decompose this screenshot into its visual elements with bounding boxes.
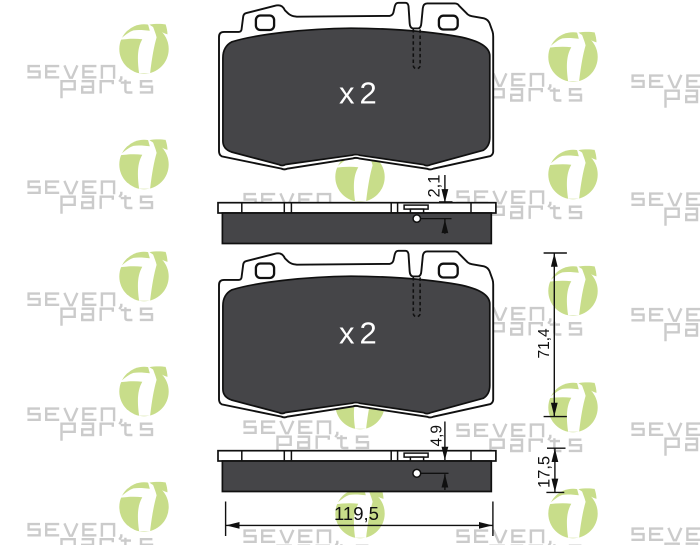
svg-text:2: 2	[360, 316, 377, 351]
svg-text:4,9: 4,9	[428, 425, 445, 447]
svg-text:2,1: 2,1	[426, 175, 444, 198]
svg-text:x: x	[339, 76, 355, 111]
svg-text:119,5: 119,5	[334, 503, 379, 524]
svg-text:x: x	[339, 316, 355, 351]
svg-text:17,5: 17,5	[536, 456, 554, 488]
svg-text:71,4: 71,4	[536, 328, 553, 359]
svg-text:2: 2	[360, 76, 377, 111]
